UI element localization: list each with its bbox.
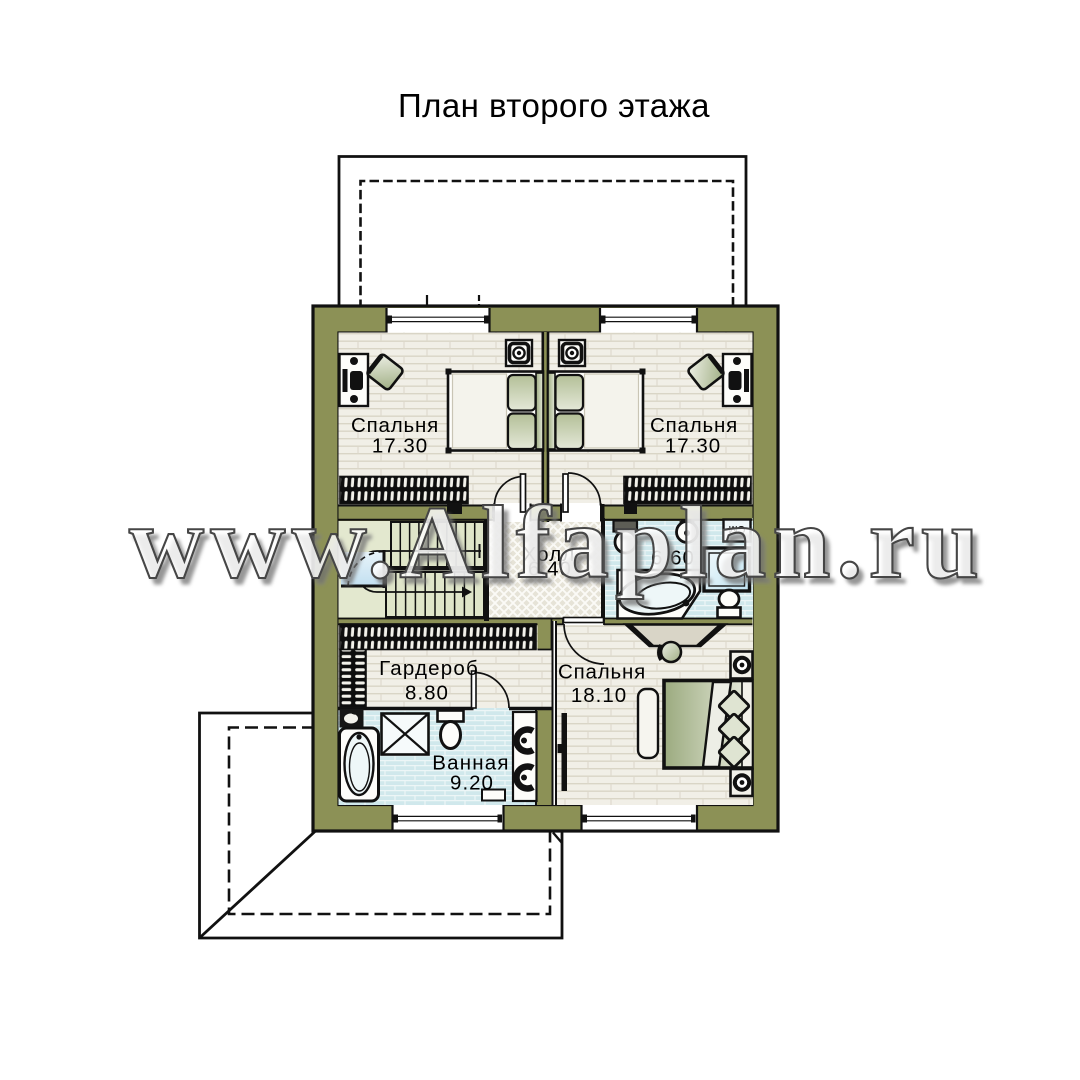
svg-text:Спальня: Спальня bbox=[558, 661, 646, 684]
svg-text:9.20: 9.20 bbox=[450, 772, 494, 795]
svg-text:18.10: 18.10 bbox=[571, 684, 627, 707]
svg-text:17.30: 17.30 bbox=[665, 435, 721, 458]
svg-text:Гардероб: Гардероб bbox=[379, 657, 479, 680]
svg-text:17.30: 17.30 bbox=[372, 435, 428, 458]
svg-text:8.80: 8.80 bbox=[405, 682, 449, 705]
svg-text:План второго этажа: План второго этажа bbox=[398, 87, 710, 124]
